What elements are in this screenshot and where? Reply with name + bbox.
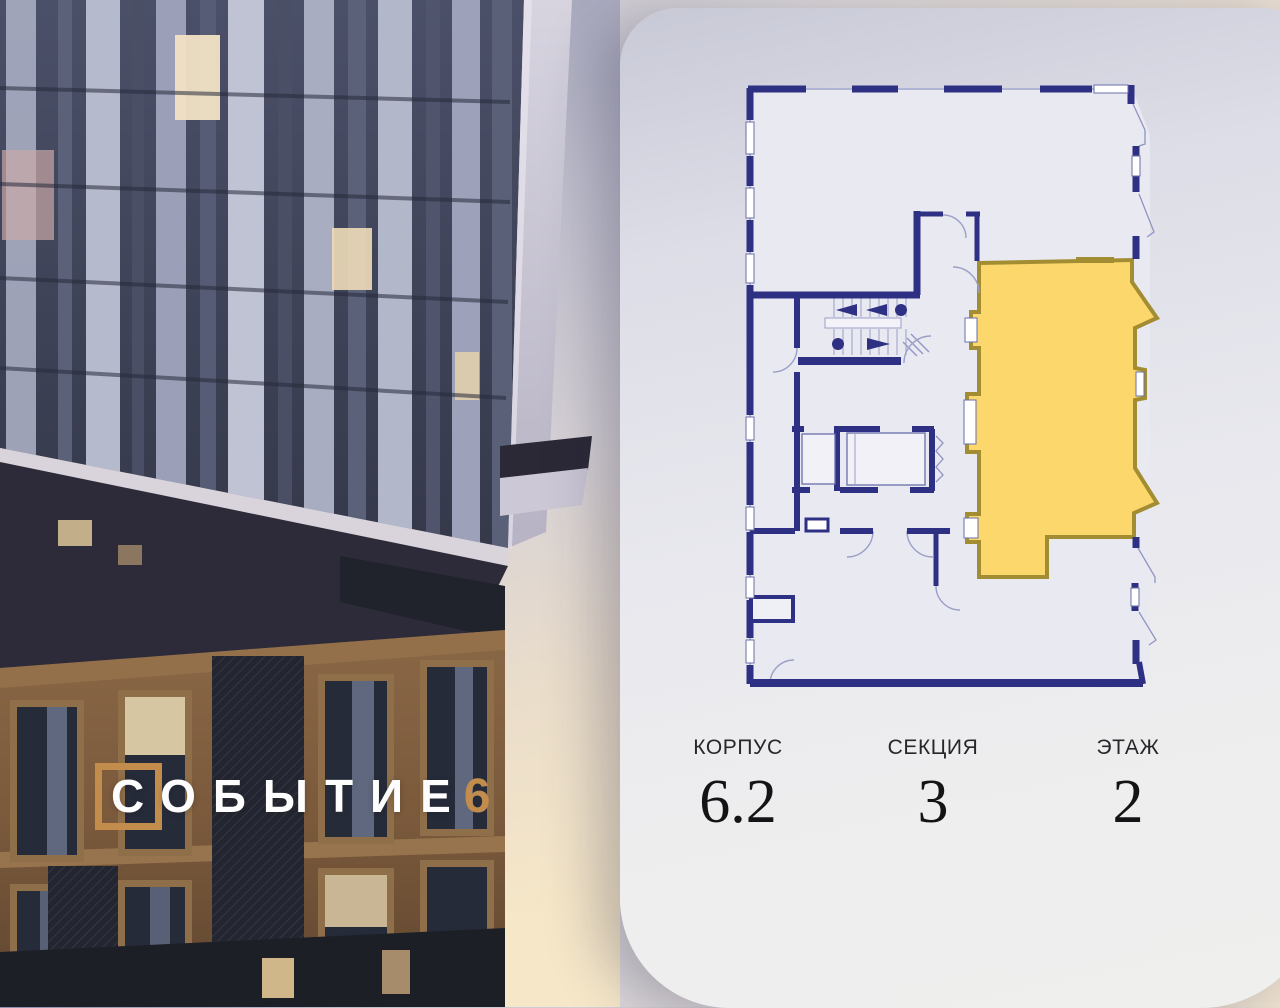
lit-window <box>332 228 372 290</box>
shaft-niche <box>806 519 828 531</box>
info-label: СЕКЦИЯ <box>888 736 979 760</box>
closet <box>751 597 793 621</box>
logo: СОБЫТИЕ 6 <box>95 763 491 830</box>
elevators <box>802 433 925 485</box>
info-sektsiya: СЕКЦИЯ 3 <box>888 736 979 833</box>
logo-number: 6 <box>464 763 491 830</box>
lit-window <box>175 35 220 120</box>
floorplan-card[interactable]: КОРПУС 6.2 СЕКЦИЯ 3 ЭТАЖ 2 <box>620 8 1280 1008</box>
info-value: 2 <box>1096 771 1159 833</box>
info-label: КОРПУС <box>693 736 783 760</box>
page: СОБЫТИЕ 6 <box>0 0 1280 1007</box>
info-label: ЭТАЖ <box>1096 736 1159 760</box>
info-etazh: ЭТАЖ 2 <box>1096 736 1159 833</box>
building-photo <box>0 0 620 1007</box>
lit-window <box>2 150 54 240</box>
info-value: 3 <box>888 771 979 833</box>
floor-plan[interactable] <box>740 80 1170 700</box>
info-value: 6.2 <box>693 771 783 833</box>
info-korpus: КОРПУС 6.2 <box>693 736 783 833</box>
highlighted-apartment[interactable] <box>967 260 1157 577</box>
lit-window <box>455 352 479 400</box>
logo-text: СОБЫТИЕ <box>111 763 468 830</box>
